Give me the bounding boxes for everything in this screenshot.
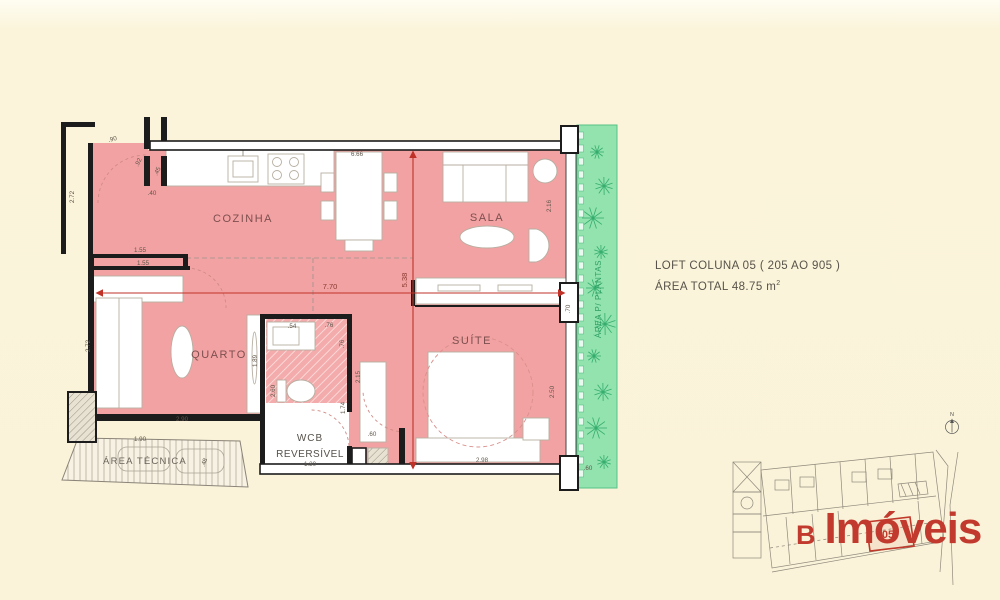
pebble xyxy=(579,210,584,217)
pebble xyxy=(579,327,584,334)
entry-jamb xyxy=(144,117,150,149)
pebble xyxy=(579,262,584,269)
pebble xyxy=(579,288,584,295)
dimension-label: 6.66 xyxy=(351,151,364,158)
pebble xyxy=(579,340,584,347)
pebble xyxy=(579,301,584,308)
room-label-suite: SUÍTE xyxy=(452,334,492,347)
pebble xyxy=(579,275,584,282)
dimension-label: 1.74 xyxy=(340,401,347,414)
pebble xyxy=(579,379,584,386)
logo-name: Imóveis xyxy=(825,509,982,549)
dimension-label: 1.55 xyxy=(134,247,147,254)
pebble xyxy=(579,353,584,360)
room-label-wcb-line2: REVERSÍVEL xyxy=(276,447,344,460)
room-label-area-plantas: ÁREA P/ PLANTAS xyxy=(594,260,603,338)
unit-area: ÁREA TOTAL 48.75 m2 xyxy=(655,275,915,296)
pebble xyxy=(579,444,584,451)
dimension-label: 1.55 xyxy=(137,260,150,267)
rug-oval xyxy=(171,326,193,378)
dimension-label: 2.16 xyxy=(546,199,553,212)
column xyxy=(561,126,578,153)
dimension-label: .60 xyxy=(584,465,593,472)
suite-bed xyxy=(428,352,514,444)
pebble xyxy=(579,431,584,438)
dimension-label: 2.15 xyxy=(355,370,362,383)
dimension-label: .76 xyxy=(325,322,334,329)
room-label-sala: SALA xyxy=(470,212,504,224)
pebble xyxy=(579,392,584,399)
dim-770: 7.70 xyxy=(323,282,338,291)
dimension-label: .70 xyxy=(565,304,572,313)
room-label-quarto: QUARTO xyxy=(191,349,247,361)
toilet-icon xyxy=(287,380,315,402)
compass-n: N xyxy=(950,412,954,418)
sink-icon xyxy=(228,156,258,182)
pebble xyxy=(579,184,584,191)
dimension-label: .40 xyxy=(148,190,157,197)
dim-538: 5.38 xyxy=(400,273,409,288)
pebble xyxy=(579,314,584,321)
dimension-label: 2.90 xyxy=(176,416,189,423)
nightstand xyxy=(523,418,549,440)
dimension-label: 1.30 xyxy=(304,461,317,468)
site-key-plan: 05 N xyxy=(733,412,959,585)
dimension-label: .60 xyxy=(368,431,377,438)
dimension-label: 1.90 xyxy=(134,436,147,443)
pebble xyxy=(579,405,584,412)
column xyxy=(560,283,578,322)
unit-info-block: LOFT COLUNA 05 ( 205 AO 905 ) ÁREA TOTAL… xyxy=(655,258,915,296)
room-label-area-tecnica: ÁREA TÉCNICA xyxy=(103,456,187,467)
chair xyxy=(321,173,334,192)
dimension-label: .54 xyxy=(288,323,297,330)
dimension-label: 2.60 xyxy=(270,384,277,397)
pebble xyxy=(579,418,584,425)
pebble xyxy=(579,457,584,464)
pebble xyxy=(579,223,584,230)
pebble xyxy=(579,197,584,204)
shaft xyxy=(68,392,96,442)
side-table xyxy=(533,159,557,183)
room-label-cozinha: COZINHA xyxy=(213,213,273,225)
pebble xyxy=(579,132,584,139)
brand-logo: B Imóveis xyxy=(796,509,981,549)
dining-table xyxy=(336,152,382,240)
dimension-label: .90 xyxy=(108,135,119,144)
column xyxy=(560,456,578,490)
dimension-label: 2.72 xyxy=(85,339,92,352)
pebble xyxy=(579,171,584,178)
dimension-label: 2.50 xyxy=(549,385,556,398)
dimension-label: 2.98 xyxy=(476,457,489,464)
pebble xyxy=(579,366,584,373)
dimension-label: 1.89 xyxy=(252,354,259,367)
dimension-label: .76 xyxy=(339,339,346,348)
pebble xyxy=(579,158,584,165)
sofa xyxy=(443,152,528,202)
dimension-label: 2.72 xyxy=(69,190,76,203)
north-compass-icon: N xyxy=(946,412,959,434)
bench xyxy=(360,362,386,442)
pebble xyxy=(579,145,584,152)
pebble xyxy=(579,249,584,256)
toilet-tank xyxy=(277,380,286,402)
unit-title: LOFT COLUNA 05 ( 205 AO 905 ) xyxy=(655,258,915,275)
pebble-band xyxy=(579,132,584,477)
tv-oval xyxy=(460,226,514,248)
stove-icon xyxy=(268,154,304,184)
logo-prefix: B xyxy=(796,522,816,549)
pebble xyxy=(579,236,584,243)
top-wall xyxy=(150,141,576,150)
room-label-wcb-line1: WCB xyxy=(297,433,323,444)
